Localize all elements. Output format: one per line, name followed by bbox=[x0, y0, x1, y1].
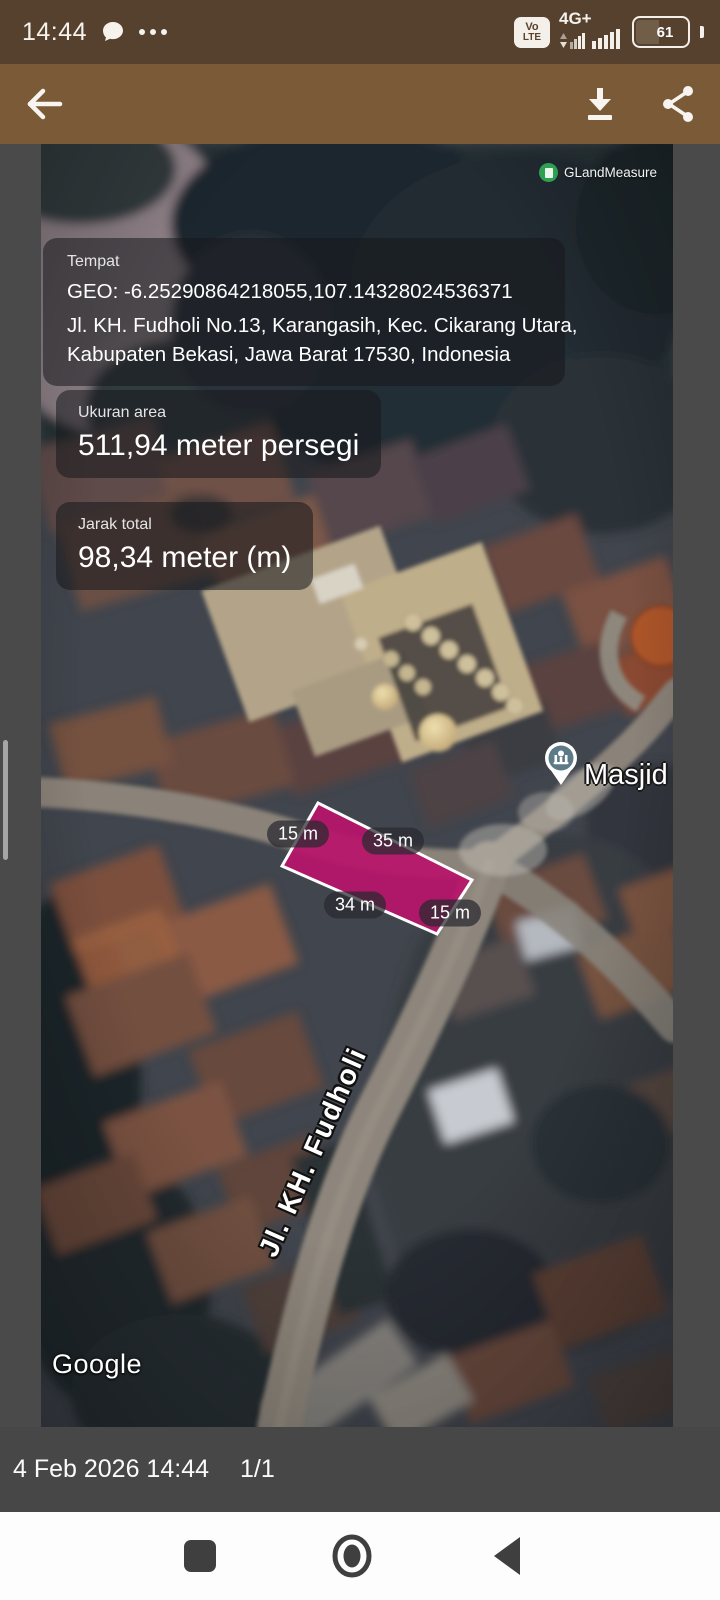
measurement-label-left: 15 m bbox=[267, 821, 329, 848]
back-triangle-icon bbox=[490, 1534, 526, 1578]
battery-percent: 61 bbox=[634, 24, 688, 41]
status-bar: 14:44 Vo LTE 4G+ bbox=[0, 0, 720, 64]
mosque-pin-icon[interactable] bbox=[543, 741, 579, 787]
measurement-label-top: 35 m bbox=[362, 828, 424, 855]
distance-value: 98,34 meter (m) bbox=[78, 541, 291, 575]
screen: 14:44 Vo LTE 4G+ bbox=[0, 0, 720, 1600]
back-icon[interactable] bbox=[24, 86, 64, 122]
status-time: 14:44 bbox=[22, 18, 87, 47]
notification-overflow-icon bbox=[139, 29, 167, 35]
photo-viewer[interactable]: 15 m 35 m 34 m 15 m bbox=[0, 144, 720, 1427]
app-watermark: GLandMeasure bbox=[539, 163, 657, 182]
address-line-2: Kabupaten Bekasi, Jawa Barat 17530, Indo… bbox=[67, 341, 551, 370]
google-logo: Google bbox=[52, 1349, 142, 1380]
android-navbar bbox=[0, 1512, 720, 1600]
network-type-label: 4G+ bbox=[559, 10, 592, 27]
signal-cluster: 4G+ bbox=[559, 10, 623, 54]
home-circle-icon bbox=[328, 1532, 376, 1580]
back-button[interactable] bbox=[463, 1512, 553, 1600]
signal-strength-icon bbox=[559, 28, 623, 54]
battery-icon: 61 bbox=[632, 16, 690, 48]
address-line-1: Jl. KH. Fudholi No.13, Karangasih, Kec. … bbox=[67, 312, 551, 341]
poi-label[interactable]: Masjid J bbox=[584, 759, 673, 792]
photo-info-bar: 4 Feb 2026 14:44 1/1 bbox=[0, 1427, 720, 1512]
scroll-indicator bbox=[3, 740, 8, 860]
download-icon[interactable] bbox=[584, 86, 616, 122]
status-right-cluster: Vo LTE 4G+ bbox=[514, 10, 704, 54]
recents-square-icon bbox=[184, 1540, 216, 1572]
volte-line2: LTE bbox=[523, 33, 541, 43]
distance-card: Jarak total 98,34 meter (m) bbox=[56, 502, 313, 590]
photo-page-indicator: 1/1 bbox=[240, 1455, 275, 1484]
volte-icon: Vo LTE bbox=[514, 17, 550, 48]
chat-bubble-notification-icon bbox=[101, 20, 125, 44]
map-screenshot: 15 m 35 m 34 m 15 m bbox=[41, 144, 673, 1427]
area-card: Ukuran area 511,94 meter persegi bbox=[56, 390, 381, 478]
battery-nub bbox=[700, 26, 704, 38]
glandmeasure-app-icon bbox=[539, 163, 558, 182]
place-card-label: Tempat bbox=[67, 253, 551, 271]
toolbar bbox=[0, 64, 720, 144]
distance-card-label: Jarak total bbox=[78, 516, 291, 534]
watermark-text: GLandMeasure bbox=[564, 165, 657, 180]
photo-datetime: 4 Feb 2026 14:44 bbox=[13, 1455, 209, 1484]
share-icon[interactable] bbox=[660, 85, 696, 123]
measurement-label-bottom: 34 m bbox=[324, 892, 386, 919]
volte-line1: Vo bbox=[525, 22, 538, 33]
area-card-label: Ukuran area bbox=[78, 404, 359, 422]
measurement-label-right: 15 m bbox=[419, 900, 481, 927]
recents-button[interactable] bbox=[155, 1512, 245, 1600]
geo-coordinates: GEO: -6.25290864218055,107.1432802453637… bbox=[67, 280, 551, 304]
place-info-card: Tempat GEO: -6.25290864218055,107.143280… bbox=[43, 238, 565, 386]
status-left-cluster: 14:44 bbox=[22, 18, 167, 47]
home-button[interactable] bbox=[307, 1512, 397, 1600]
area-value: 511,94 meter persegi bbox=[78, 429, 359, 463]
